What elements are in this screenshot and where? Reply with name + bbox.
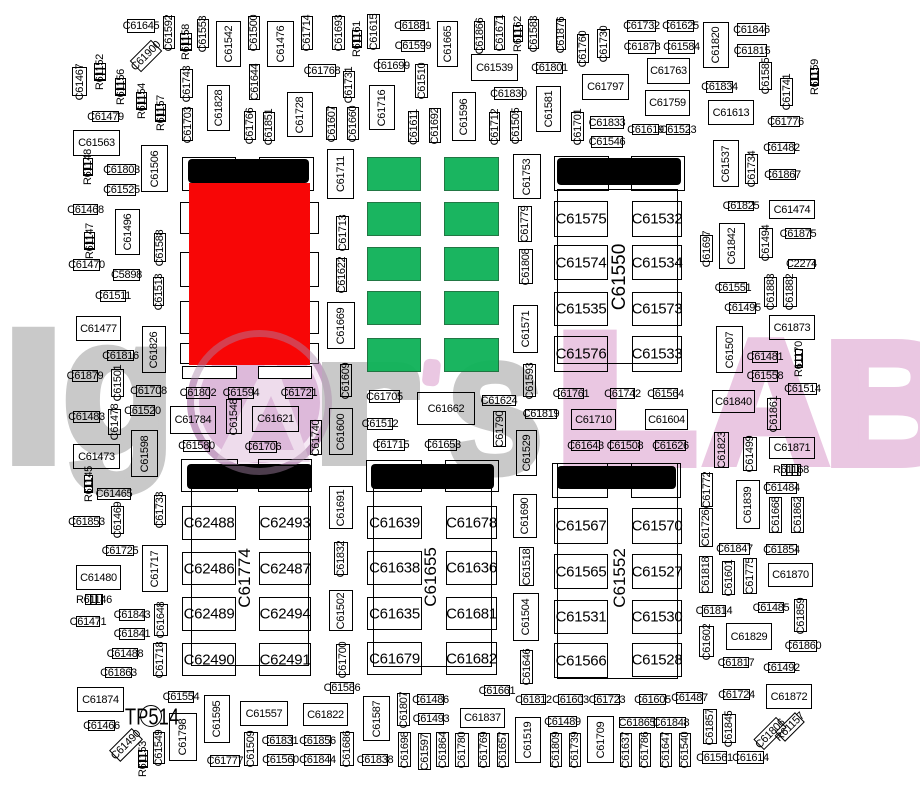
svg-text:B: B bbox=[824, 306, 920, 500]
svg-text:i: i bbox=[13, 310, 54, 488]
